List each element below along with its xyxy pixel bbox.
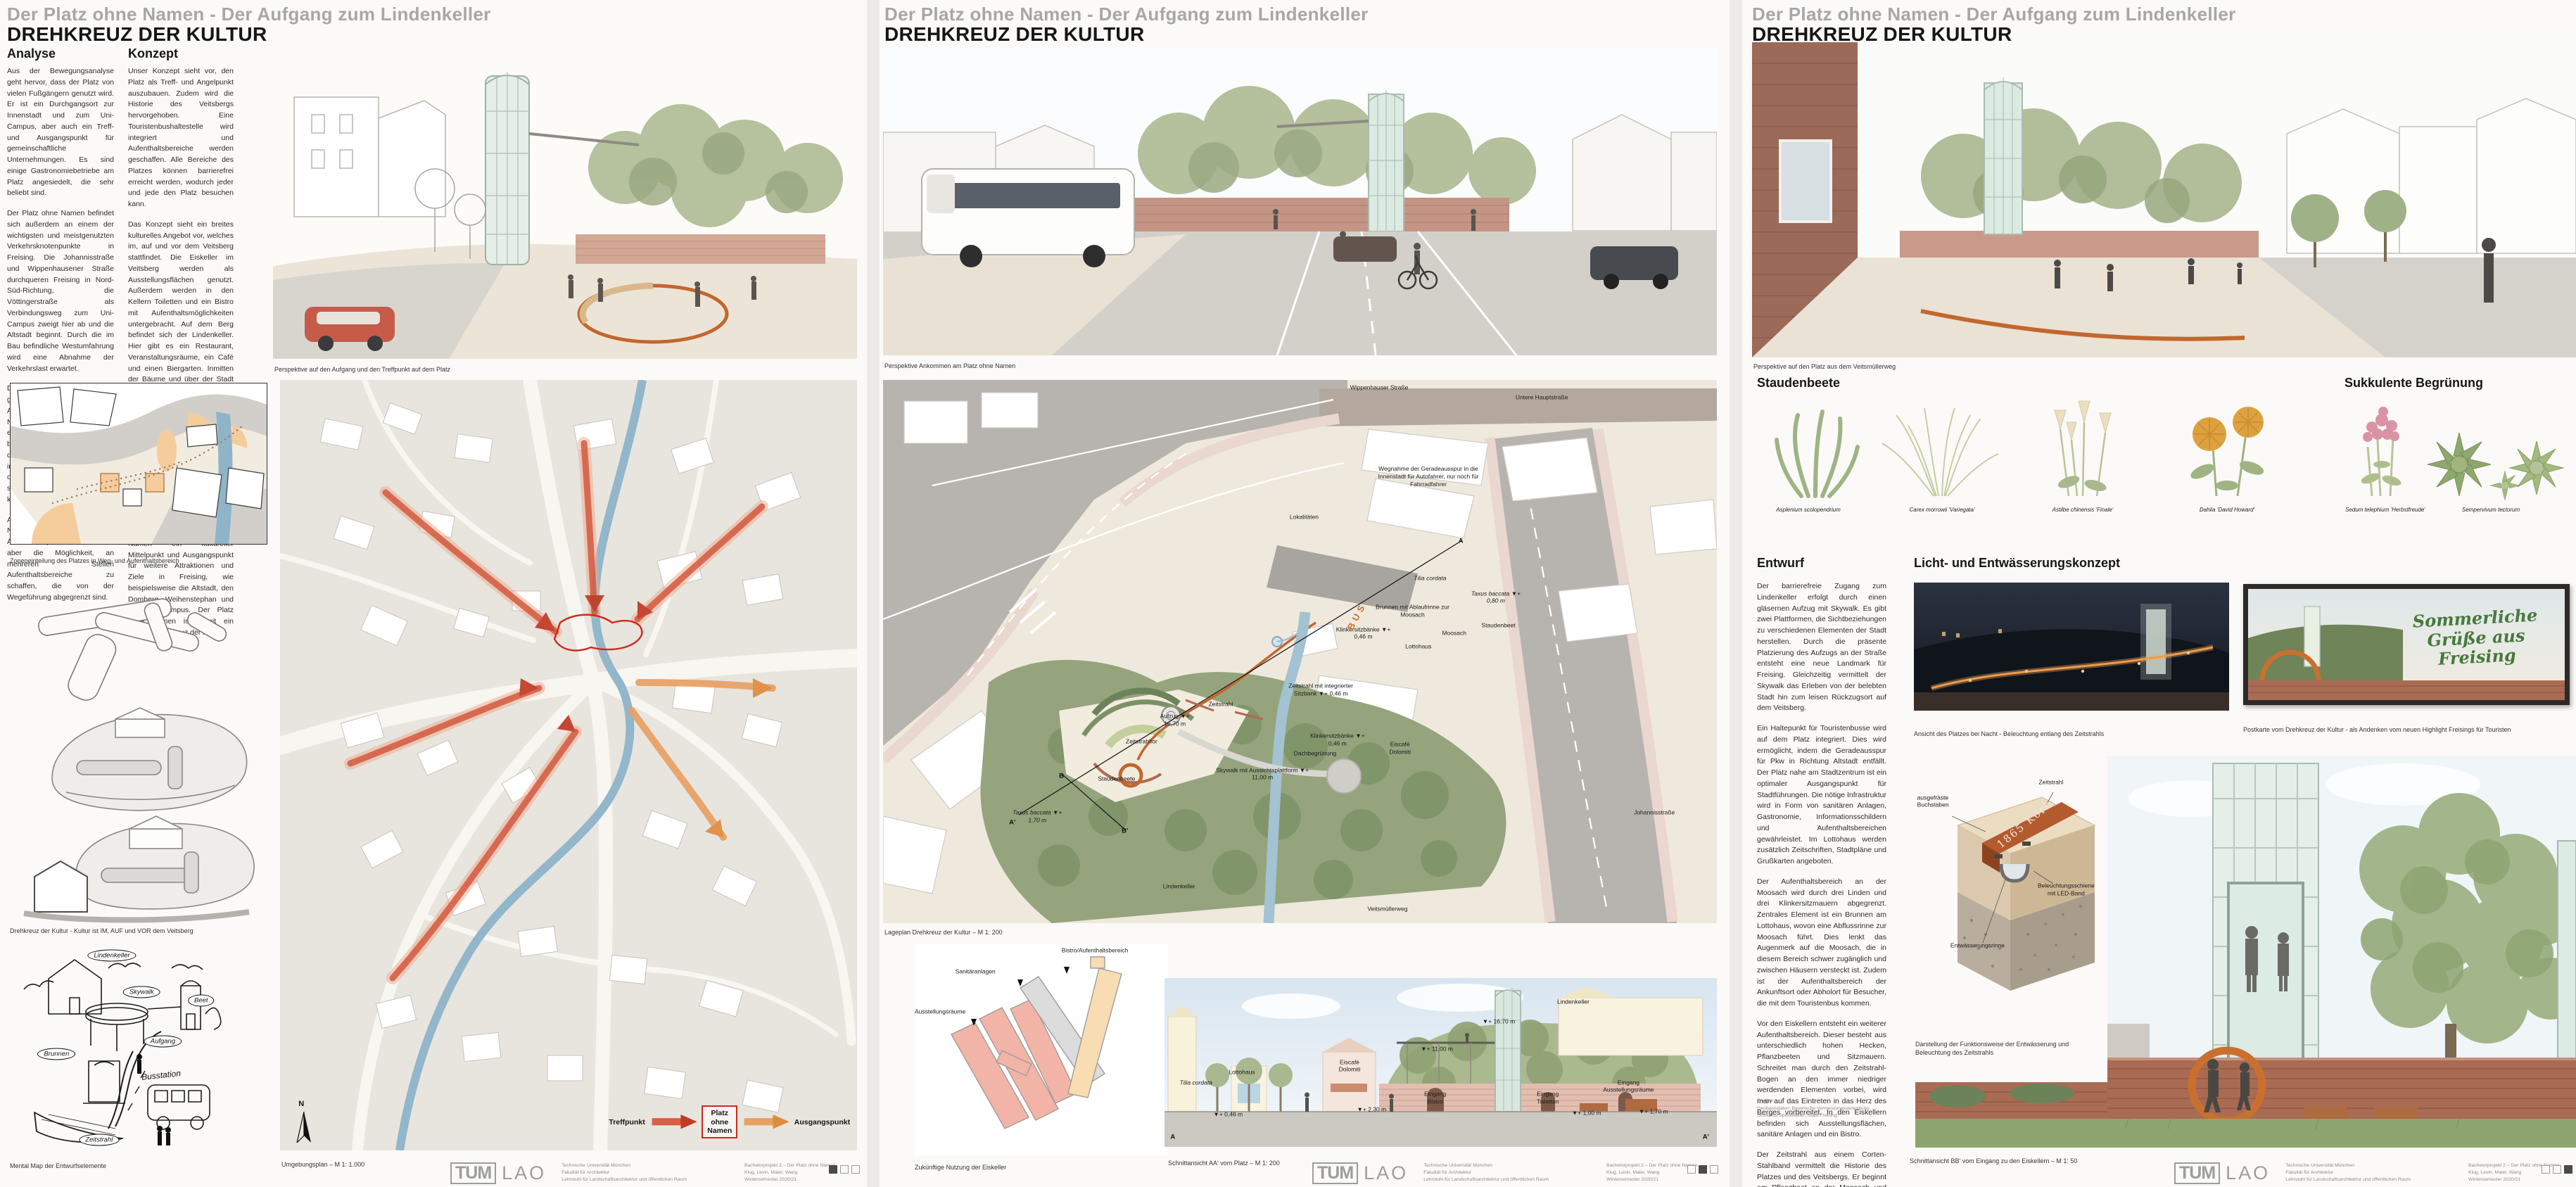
page-square-2 — [2553, 1165, 2561, 1174]
schnitt-label-bistro: Eingang Bistro — [1420, 1091, 1451, 1105]
schnitt-label-h1670: ▼+ 16,70 m — [1483, 1018, 1515, 1026]
footer-institution: Technische Universität München Fakultät … — [561, 1162, 687, 1184]
footer-proj-line: Bachelorprojekt 2 – Der Platz ohne Namen — [1606, 1162, 1697, 1169]
mentalmap-label-lindenkeller: Lindenkeller — [87, 949, 136, 961]
schnitt-bb-left-strip — [1915, 1082, 2107, 1148]
footer-inst-line: Fakultät für Architektur — [1423, 1169, 1549, 1176]
schnitt-bb — [2107, 756, 2576, 1148]
analyse-p1: Aus der Bewegungsanalyse geht hervor, da… — [7, 66, 114, 199]
page-square-2 — [1699, 1165, 1707, 1174]
panel-gutter — [1730, 0, 1742, 1187]
label-wegnahme: Wegnahme der Geradeausspur in die Innens… — [1370, 465, 1486, 488]
label-zeitstrahl: Zeitstrahl — [1208, 701, 1233, 709]
analyse-heading: Analyse — [7, 46, 56, 61]
page-indicator-panel3 — [2542, 1165, 2572, 1174]
caption-keller: Drehkreuz der Kultur - Kultur ist IM, AU… — [10, 927, 193, 934]
footer-panel2: TUM LAO Technische Universität München F… — [1312, 1162, 1697, 1184]
schnitt-mark-a2: A' — [1703, 1133, 1709, 1141]
orange-arrow-icon — [742, 1115, 789, 1129]
legend-ausgangspunkt: Ausgangspunkt — [794, 1118, 850, 1126]
page-square-1 — [829, 1165, 837, 1174]
schnitt-label-lottohaus: Lottohaus — [1229, 1069, 1255, 1077]
mentalmap-label-brunnen: Brunnen — [37, 1048, 75, 1060]
mentalmap-label-skywalk: Skywalk — [123, 986, 160, 998]
label-untere-hauptstrasse: Untere Hauptstraße — [1516, 393, 1568, 401]
label-eiscafe: Eiscafé Dolomiti — [1379, 741, 1421, 756]
label-bistro: Bistro/Aufenthaltsbereich — [1062, 947, 1129, 955]
footer-panel3: TUM LAO Technische Universität München F… — [2174, 1162, 2559, 1184]
keller-sketches — [10, 581, 266, 923]
zeitstrahl-detail-axon: Zeitstrahl ausgefräste Buchstaben Beleuc… — [1915, 758, 2104, 1026]
caption-schnitt-bb: Schnittansicht BB' vom Eingang zu den Ei… — [1910, 1157, 2077, 1164]
licht-heading: Licht- und Entwässerungskonzept — [1914, 556, 2120, 571]
page-square-3 — [2564, 1165, 2572, 1174]
perspective-veitsmuellerweg-render — [1752, 42, 2576, 357]
footer-proj-line: Klug, Levin, Maier, Wang — [1606, 1169, 1697, 1176]
schnitt-label-h1100: ▼+ 11,00 m — [1421, 1045, 1453, 1053]
page-square-1 — [1687, 1165, 1696, 1174]
label-veitsmuellerweg: Veitsmüllerweg — [1367, 906, 1407, 913]
footer-inst-line: Lehrstuhl für Landschaftsarchitektur und… — [1423, 1176, 1549, 1183]
red-arrow-icon — [650, 1115, 697, 1129]
footer-proj-line: Wintersemester 2020/21 — [1606, 1176, 1697, 1183]
stauden-plant-sketches — [1759, 398, 2301, 503]
tum-logo: TUM — [2174, 1162, 2220, 1184]
schnitt-label-h046: ▼+ 0,46 m — [1213, 1111, 1243, 1119]
footer-inst-line: Technische Universität München — [1423, 1162, 1549, 1169]
label-taxus-170: Taxus baccata ▼+ 1,70 m — [1010, 808, 1064, 823]
presentation-board: Der Platz ohne Namen - Der Aufgang zum L… — [0, 0, 2576, 1187]
mental-map: Lindenkeller Skywalk Beet Aufgang Brunne… — [10, 947, 222, 1153]
caption-zonemap: Zoneneinteilung des Platzes in Weg- und … — [10, 557, 179, 564]
footer-inst-line: Technische Universität München — [2285, 1162, 2411, 1169]
axon-label-rinne: Entwässerungsrinne — [1950, 942, 2005, 950]
caption-mentalmap: Mental Map der Entwurfselemente — [10, 1162, 106, 1169]
page-square-2 — [840, 1165, 849, 1174]
label-zeitstrahl-sitzbank: Zeitstrahl mit integrierter Sitzbank ▼+ … — [1288, 682, 1353, 697]
schnitt-label-h230: ▼+ 2,30 m — [1357, 1106, 1387, 1114]
quellen-line1: Quellen — [1757, 1098, 1869, 1105]
plant-label-carex: Carex morrowii 'Variegata' — [1909, 507, 1974, 513]
page-square-1 — [2542, 1165, 2550, 1174]
panel3-title-main: DREHKREUZ DER KULTUR — [1752, 24, 2012, 44]
axon-label-zeitstrahl: Zeitstrahl — [2038, 779, 2063, 787]
schnitt-label-lindenkeller: Lindenkeller — [1557, 998, 1590, 1005]
label-moosach: Moosach — [1442, 629, 1466, 637]
caption-umgebungsplan: Umgebungsplan – M 1: 1.000 — [281, 1161, 364, 1168]
schnitt-label-eiscafe: Eiscafé Dolomiti — [1333, 1058, 1366, 1073]
schnitt-mark-a: A — [1170, 1133, 1175, 1141]
panel1-title-main: DREHKREUZ DER KULTUR — [7, 24, 267, 44]
plant-label-sedum: Sedum telephium 'Herbstfreude' — [2345, 507, 2425, 513]
plant-label-astilbe: Astilbe chinensis 'Finale' — [2052, 507, 2114, 513]
lageplan: Wippenhauser Straße Untere Hauptstraße W… — [883, 380, 1717, 923]
konzept-heading: Konzept — [128, 46, 178, 61]
footer-proj-line: Klug, Levin, Maier, Wang — [744, 1169, 835, 1176]
caption-schnitt-aa: Schnittansicht AA' vom Platz – M 1: 200 — [1168, 1160, 1280, 1167]
caption-perspective-p3: Perspektive auf den Platz aus dem Veitsm… — [1753, 363, 1896, 370]
page-square-3 — [851, 1165, 860, 1174]
umgebungsplan-map: N Treffpunkt Platz ohne Namen Ausgangspu… — [280, 380, 857, 1150]
north-arrow-icon — [296, 1112, 312, 1143]
zone-map — [10, 383, 267, 545]
label-johannisstrasse: Johannisstraße — [1634, 808, 1675, 816]
schnitt-label-tilia: Tilia cordata — [1180, 1079, 1212, 1086]
perspective-ankommen-render — [883, 48, 1717, 355]
panel1-title-sub: Der Platz ohne Namen - Der Aufgang zum L… — [7, 4, 491, 24]
plant-label-sempervivum: Sempervivum tectorum — [2462, 507, 2520, 513]
page-indicator-panel2 — [1687, 1165, 1718, 1174]
tum-logo: TUM — [450, 1162, 496, 1184]
footer-proj-line: Bachelorprojekt 2 – Der Platz ohne Namen — [744, 1162, 835, 1169]
entwurf-heading: Entwurf — [1757, 556, 1804, 571]
footer-project: Bachelorprojekt 2 – Der Platz ohne Namen… — [744, 1162, 835, 1184]
tum-logo: TUM — [1312, 1162, 1358, 1184]
label-lokalitaeten: Lokalitäten — [1290, 514, 1319, 521]
label-skywalk: Skywalk mit Aussichtsplattform ▼+ 11,00 … — [1210, 766, 1315, 781]
entwurf-p1: Der barrierefreie Zugang zum Lindenkelle… — [1757, 581, 1886, 714]
label-taxus-080: Taxus baccata ▼+ 0,80 m — [1467, 590, 1525, 604]
analyse-p2: Der Platz ohne Namen befindet sich außer… — [7, 208, 114, 374]
entwurf-p4: Vor den Eiskellern entsteht ein weiterer… — [1757, 1019, 1886, 1141]
footer-inst-line: Fakultät für Architektur — [2285, 1169, 2411, 1176]
label-tilia: Tilia cordata — [1414, 574, 1446, 582]
axon-label-buchstaben: ausgefräste Buchstaben — [1917, 794, 1960, 808]
sukkulente-heading: Sukkulente Begrünung — [2345, 376, 2483, 391]
entwurf-p2: Ein Haltepunkt für Touristenbusse wird a… — [1757, 723, 1886, 868]
label-klinkersitzbaenke-1: Klinkersitzbänke ▼+ 0,46 m — [1335, 626, 1392, 640]
footer-inst-line: Lehrstuhl für Landschaftsarchitektur und… — [2285, 1176, 2411, 1183]
page-square-3 — [1710, 1165, 1718, 1174]
mentalmap-label-zeitstrahl: Zeitstrahl — [79, 1134, 119, 1146]
label-wippenhauser: Wippenhauser Straße — [1350, 383, 1409, 391]
lao-logo: LAO — [502, 1163, 546, 1184]
page-indicator-panel1 — [829, 1165, 860, 1174]
plant-label-dahlia: Dahlia 'David Howard' — [2200, 507, 2254, 513]
panel-gutter — [867, 0, 880, 1187]
postcard-script-text: Sommerliche Grüße aus Freising — [2392, 604, 2560, 671]
legend-treffpunkt: Treffpunkt — [609, 1118, 645, 1126]
night-render — [1914, 583, 2229, 711]
label-klinkersitzbaenke-2: Klinkersitzbänke ▼+ 0,46 m — [1309, 732, 1366, 747]
quellen: Quellen Geobasisdaten: Bayerische Vermes… — [1757, 1098, 1869, 1120]
caption-lageplan: Lageplan Drehkreuz der Kultur – M 1: 200 — [884, 929, 1003, 936]
mentalmap-label-beet: Beet — [188, 994, 215, 1006]
label-dachbegruenung: Dachbegrünung — [1293, 750, 1338, 758]
section-mark-b: B — [1059, 772, 1064, 780]
panel3-title-sub: Der Platz ohne Namen - Der Aufgang zum L… — [1752, 4, 2236, 24]
footer-project: Bachelorprojekt 2 – Der Platz ohne Namen… — [1606, 1162, 1697, 1184]
legend-platz-box: Platz ohne Namen — [702, 1105, 737, 1138]
footer-inst-line: Lehrstuhl für Landschaftsarchitektur und… — [561, 1176, 687, 1183]
caption-eiskeller: Zukünftige Nutzung der Eiskeller — [915, 1164, 1006, 1171]
caption-axon: Darstellung der Funktionsweise der Entwä… — [1915, 1040, 2081, 1057]
label-staudenbeet: Staudenbeet — [1481, 622, 1515, 630]
schnitt-aa: Tilia cordata Lottohaus ▼+ 0,46 m Eiscaf… — [1165, 978, 1717, 1147]
footer-inst-line: Technische Universität München — [561, 1162, 687, 1169]
label-brunnen: Brunnen mit Ablaufrinne zur Moosach — [1374, 603, 1450, 618]
staudenbeete-heading: Staudenbeete — [1757, 376, 1840, 391]
label-lindenkeller-plan: Lindenkeller — [1163, 882, 1195, 890]
axon-label-led: Beleuchtungsschiene mit LED-Band — [2035, 882, 2097, 897]
panel2-title-sub: Der Platz ohne Namen - Der Aufgang zum L… — [884, 4, 1369, 24]
quellen-line2: Geobasisdaten: Bayerische Vermessungsver… — [1757, 1105, 1869, 1113]
lao-logo: LAO — [2226, 1163, 2270, 1184]
caption-perspective-p1: Perspektive auf den Aufgang und den Tref… — [274, 366, 450, 373]
footer-inst-line: Fakultät für Architektur — [561, 1169, 687, 1176]
schnitt-label-toiletten: Eingang Toiletten — [1531, 1091, 1565, 1105]
caption-postkarte: Postkarte vom Drehkreuz der Kultur - als… — [2243, 726, 2511, 733]
quellen-line3: Grundriss Sporerkeller: Stadt Freising — [1757, 1112, 1869, 1120]
footer-institution: Technische Universität München Fakultät … — [2285, 1162, 2411, 1184]
footer-institution: Technische Universität München Fakultät … — [1423, 1162, 1549, 1184]
section-mark-a: A — [1459, 537, 1464, 545]
label-staudenbeete: Staudenbeete — [1098, 775, 1135, 783]
schnitt-label-h170: ▼+ 1,70 m — [1639, 1107, 1668, 1115]
footer-proj-line: Wintersemester 2020/21 — [2468, 1176, 2559, 1183]
label-sanitaer: Sanitäranlagen — [956, 968, 996, 976]
perspective-aufgang-render — [273, 48, 857, 359]
caption-perspective-p2: Perspektive Ankommen am Platz ohne Namen — [884, 362, 1015, 369]
plant-label-asplenium: Asplenium scolopendrium — [1776, 507, 1841, 513]
entwurf-text: Der barrierefreie Zugang zum Lindenkelle… — [1757, 581, 1886, 1187]
section-mark-b2: B' — [1122, 827, 1128, 834]
map-legend: Treffpunkt Platz ohne Namen Ausgangspunk… — [609, 1105, 850, 1138]
schnitt-label-ausstellung: Eingang Ausstellungsräume — [1599, 1079, 1657, 1093]
panel2-title-main: DREHKREUZ DER KULTUR — [884, 24, 1144, 44]
lao-logo: LAO — [1364, 1163, 1408, 1184]
label-lottohaus: Lottohaus — [1405, 643, 1431, 651]
postcard-image: Sommerliche Grüße aus Freising — [2243, 584, 2570, 705]
footer-panel1: TUM LAO Technische Universität München F… — [450, 1162, 835, 1184]
north-label: N — [298, 1100, 304, 1108]
label-ausstellung: Ausstellungsräume — [915, 1008, 965, 1016]
konzept-p1: Unser Konzept sieht vor, den Platz als T… — [128, 66, 234, 210]
mentalmap-label-aufgang: Aufgang — [144, 1036, 182, 1048]
sukkulente-plant-sketches — [2347, 398, 2576, 503]
label-aufzug: Aufzug ▼+ 16,70 m — [1155, 713, 1195, 728]
entwurf-p5: Der Zeitstrahl aus einem Corten-Stahlban… — [1757, 1150, 1886, 1187]
section-mark-a2: A' — [1009, 819, 1015, 827]
entwurf-p3: Der Aufenthaltsbereich an der Moosach wi… — [1757, 877, 1886, 1010]
eiskeller-plan: Bistro/Aufenthaltsbereich Sanitäranlagen… — [915, 944, 1168, 1155]
footer-proj-line: Wintersemester 2020/21 — [744, 1176, 835, 1183]
label-zeitstrahltor: Zeitstrahltor — [1126, 738, 1157, 746]
schnitt-label-h100: ▼+ 1,00 m — [1572, 1110, 1601, 1117]
caption-nacht: Ansicht des Platzes bei Nacht - Beleucht… — [1914, 730, 2104, 737]
